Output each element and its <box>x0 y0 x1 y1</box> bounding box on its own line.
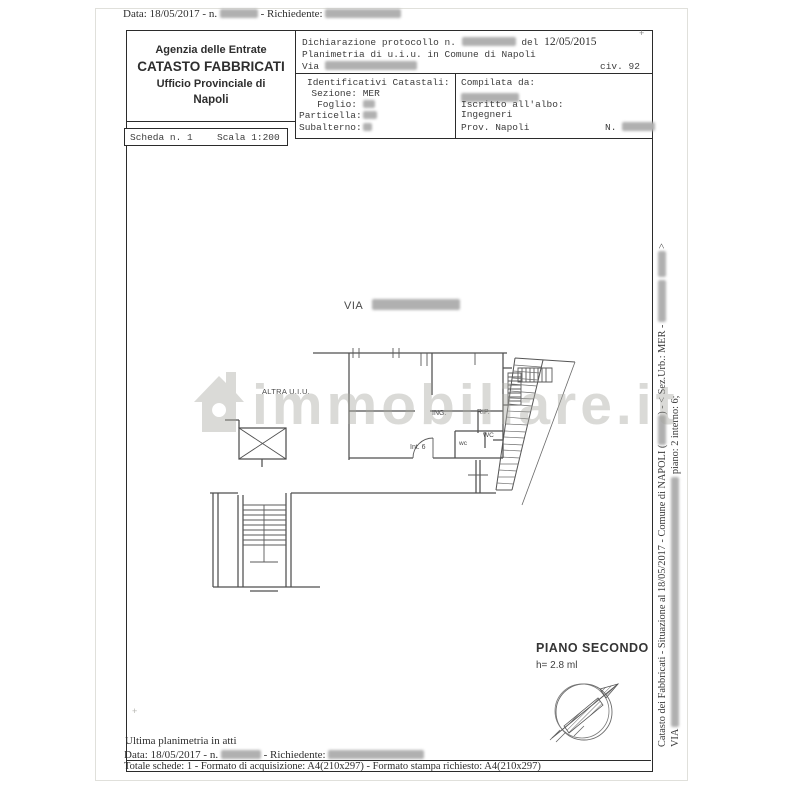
redacted-text <box>622 122 655 131</box>
redacted-text <box>221 750 261 759</box>
top-date-text: Data: 18/05/2017 - n. <box>123 8 217 20</box>
redacted-text <box>658 415 666 445</box>
redacted-text <box>658 251 666 277</box>
redacted-text <box>363 111 377 119</box>
id-row-sezione: Sezione: MER <box>299 88 449 99</box>
via-label: Via <box>302 61 319 72</box>
top-header-line: Data: 18/05/2017 - n. - Richiedente: <box>123 8 401 20</box>
compiler-prov: Prov. Napoli <box>461 122 529 133</box>
room-label-ing: ING. <box>432 410 446 417</box>
redacted-text <box>220 9 258 18</box>
header-horizontal-divider <box>295 73 652 74</box>
agency-bottom-divider <box>127 121 295 122</box>
catasto-ids-title: Identificativi Catastali: <box>307 77 450 88</box>
side-annotation-line2: VIA piano: 2 interno: 6; <box>669 182 682 747</box>
ids-vertical-divider <box>455 73 456 138</box>
compiler-n: N. <box>605 122 655 133</box>
redacted-text <box>325 9 401 18</box>
scheda-number: Scheda n. 1 <box>130 132 193 143</box>
redacted-text <box>372 299 460 310</box>
redacted-text <box>325 61 417 70</box>
redacted-text <box>363 123 372 131</box>
protocol-del: del <box>521 37 538 48</box>
declaration-protocol-line: Dichiarazione protocollo n. del 12/05/20… <box>302 36 597 48</box>
scheda-bar: Scheda n. 1 Scala 1:200 <box>124 128 288 146</box>
civ-number: civ. 92 <box>600 61 640 72</box>
page-edge-left <box>95 8 96 781</box>
diagonal-outer-boundary <box>522 362 575 505</box>
room-label-altra-uiu: ALTRA U.I.U. <box>262 387 310 396</box>
scala-value: Scala 1:200 <box>217 132 280 143</box>
external-stair-flights <box>508 368 552 405</box>
protocol-prefix: Dichiarazione protocollo n. <box>302 37 456 48</box>
ids-bottom-divider <box>295 138 652 139</box>
albo-value: Ingegneri <box>461 109 512 120</box>
redacted-text <box>363 100 375 108</box>
footer-totale: Totale schede: 1 - Formato di acquisizio… <box>124 761 541 772</box>
side-annotation-line1: Catasto dei Fabbricati - Situazione al 1… <box>656 182 669 747</box>
page-edge-bottom <box>95 780 687 781</box>
room-label-rip: RIP. <box>477 409 490 416</box>
elevator-shaft <box>239 428 286 459</box>
id-row-subalterno: Subalterno: <box>299 122 449 133</box>
protocol-date: 12/05/2015 <box>544 36 596 48</box>
agency-line1: Agenzia delle Entrate <box>127 42 295 58</box>
plan-street-line: VIA <box>344 299 460 312</box>
room-label-wc-lower: wc <box>459 440 467 447</box>
redacted-text <box>328 750 424 759</box>
room-label-interno: Int. 6 <box>410 444 426 451</box>
redacted-text <box>658 280 666 322</box>
cadastral-document-page: Data: 18/05/2017 - n. - Richiedente: Age… <box>0 0 800 800</box>
room-label-wc-upper: WC <box>483 432 494 439</box>
catasto-ids-rows: Sezione: MER Foglio: Particella: Subalte… <box>299 88 449 133</box>
redacted-text <box>671 477 679 727</box>
agency-line3: Ufficio Provinciale di <box>127 76 295 92</box>
plan-via-label: VIA <box>344 300 363 312</box>
id-row-foglio: Foglio: <box>299 99 449 110</box>
apartment-walls <box>210 353 512 591</box>
id-row-particella: Particella: <box>299 110 449 121</box>
agency-header: Agenzia delle Entrate CATASTO FABBRICATI… <box>127 42 295 108</box>
redacted-text <box>462 37 516 46</box>
side-annotation: Catasto dei Fabbricati - Situazione al 1… <box>656 182 684 747</box>
top-richiedente-label: - Richiedente: <box>261 8 323 20</box>
header-vertical-divider <box>295 30 296 138</box>
floor-plan-drawing <box>130 150 660 750</box>
via-line: Via <box>302 61 417 72</box>
planimetria-line: Planimetria di u.i.u. in Comune di Napol… <box>302 49 536 60</box>
compiler-title: Compilata da: <box>461 77 535 88</box>
page-edge-right <box>687 8 688 781</box>
agency-line2: CATASTO FABBRICATI <box>127 58 295 76</box>
registration-mark: + <box>639 28 644 38</box>
agency-line4: Napoli <box>127 92 295 108</box>
